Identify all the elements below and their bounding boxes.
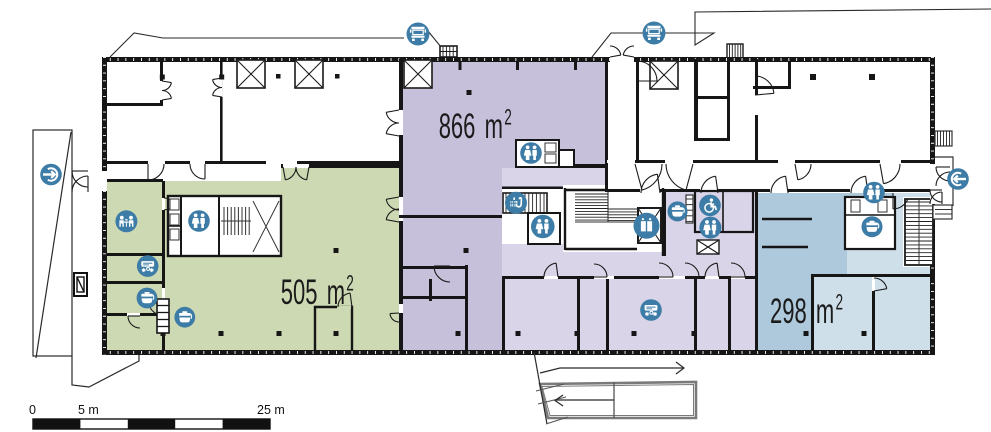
svg-text:2: 2: [836, 289, 844, 314]
svg-text:505 m: 505 m: [281, 273, 345, 313]
svg-text:5 m: 5 m: [78, 403, 99, 417]
svg-text:298 m: 298 m: [770, 292, 834, 332]
svg-text:0: 0: [29, 403, 36, 417]
svg-text:2: 2: [346, 270, 354, 295]
svg-text:25 m: 25 m: [257, 403, 285, 417]
svg-text:866 m: 866 m: [439, 107, 503, 147]
svg-text:2: 2: [504, 104, 512, 129]
